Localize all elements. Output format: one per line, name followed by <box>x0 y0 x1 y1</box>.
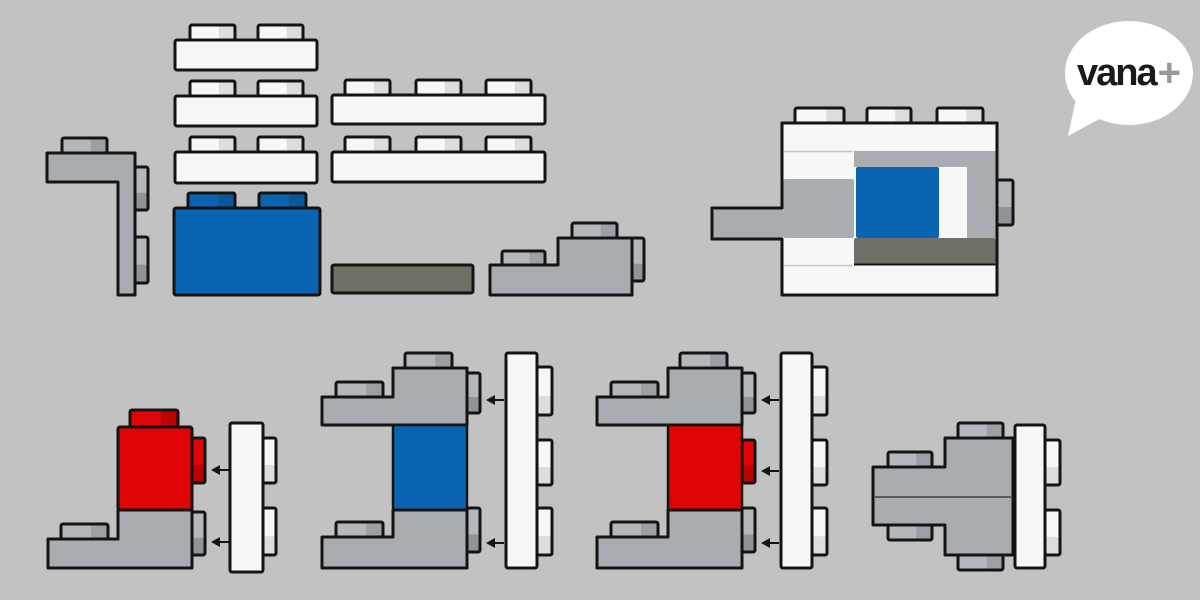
white-brick-3stud-2 <box>332 137 545 182</box>
assembly-diagram <box>0 0 1200 600</box>
step1-white-brick <box>230 423 276 572</box>
white-brick-2stud-3 <box>175 137 317 183</box>
assembly-top-right <box>712 108 1013 295</box>
step1-gray-corner <box>48 510 205 568</box>
step2-white-brick <box>506 353 552 568</box>
white-brick-3stud-1 <box>332 80 545 124</box>
step2-gray-corner-top <box>322 353 480 425</box>
gray-corner-brick <box>47 138 148 295</box>
step1-arrows <box>211 465 229 547</box>
lego-instructions-canvas: vana + <box>0 0 1200 600</box>
step3-gray-corner-top <box>597 353 755 425</box>
step3-gray-corner-bottom <box>597 508 755 568</box>
step2-gray-corner-bottom <box>322 508 480 568</box>
step3-red-brick <box>668 425 755 510</box>
olive-plate <box>332 265 473 293</box>
logo-brand-text: vana <box>1077 54 1156 92</box>
logo-plus-sign: + <box>1158 53 1181 93</box>
white-brick-2stud-2 <box>175 81 317 126</box>
gray-step-brick <box>490 223 644 295</box>
final-assembly <box>873 423 1060 570</box>
step2-arrows <box>486 395 504 548</box>
step3-arrows <box>761 395 779 548</box>
speech-bubble: vana + <box>1065 21 1193 125</box>
blue-brick <box>174 193 320 295</box>
white-brick-2stud-1 <box>175 25 317 70</box>
step2-blue-brick <box>393 425 467 510</box>
step3-white-brick <box>781 353 827 568</box>
step1-red-brick <box>118 410 205 510</box>
